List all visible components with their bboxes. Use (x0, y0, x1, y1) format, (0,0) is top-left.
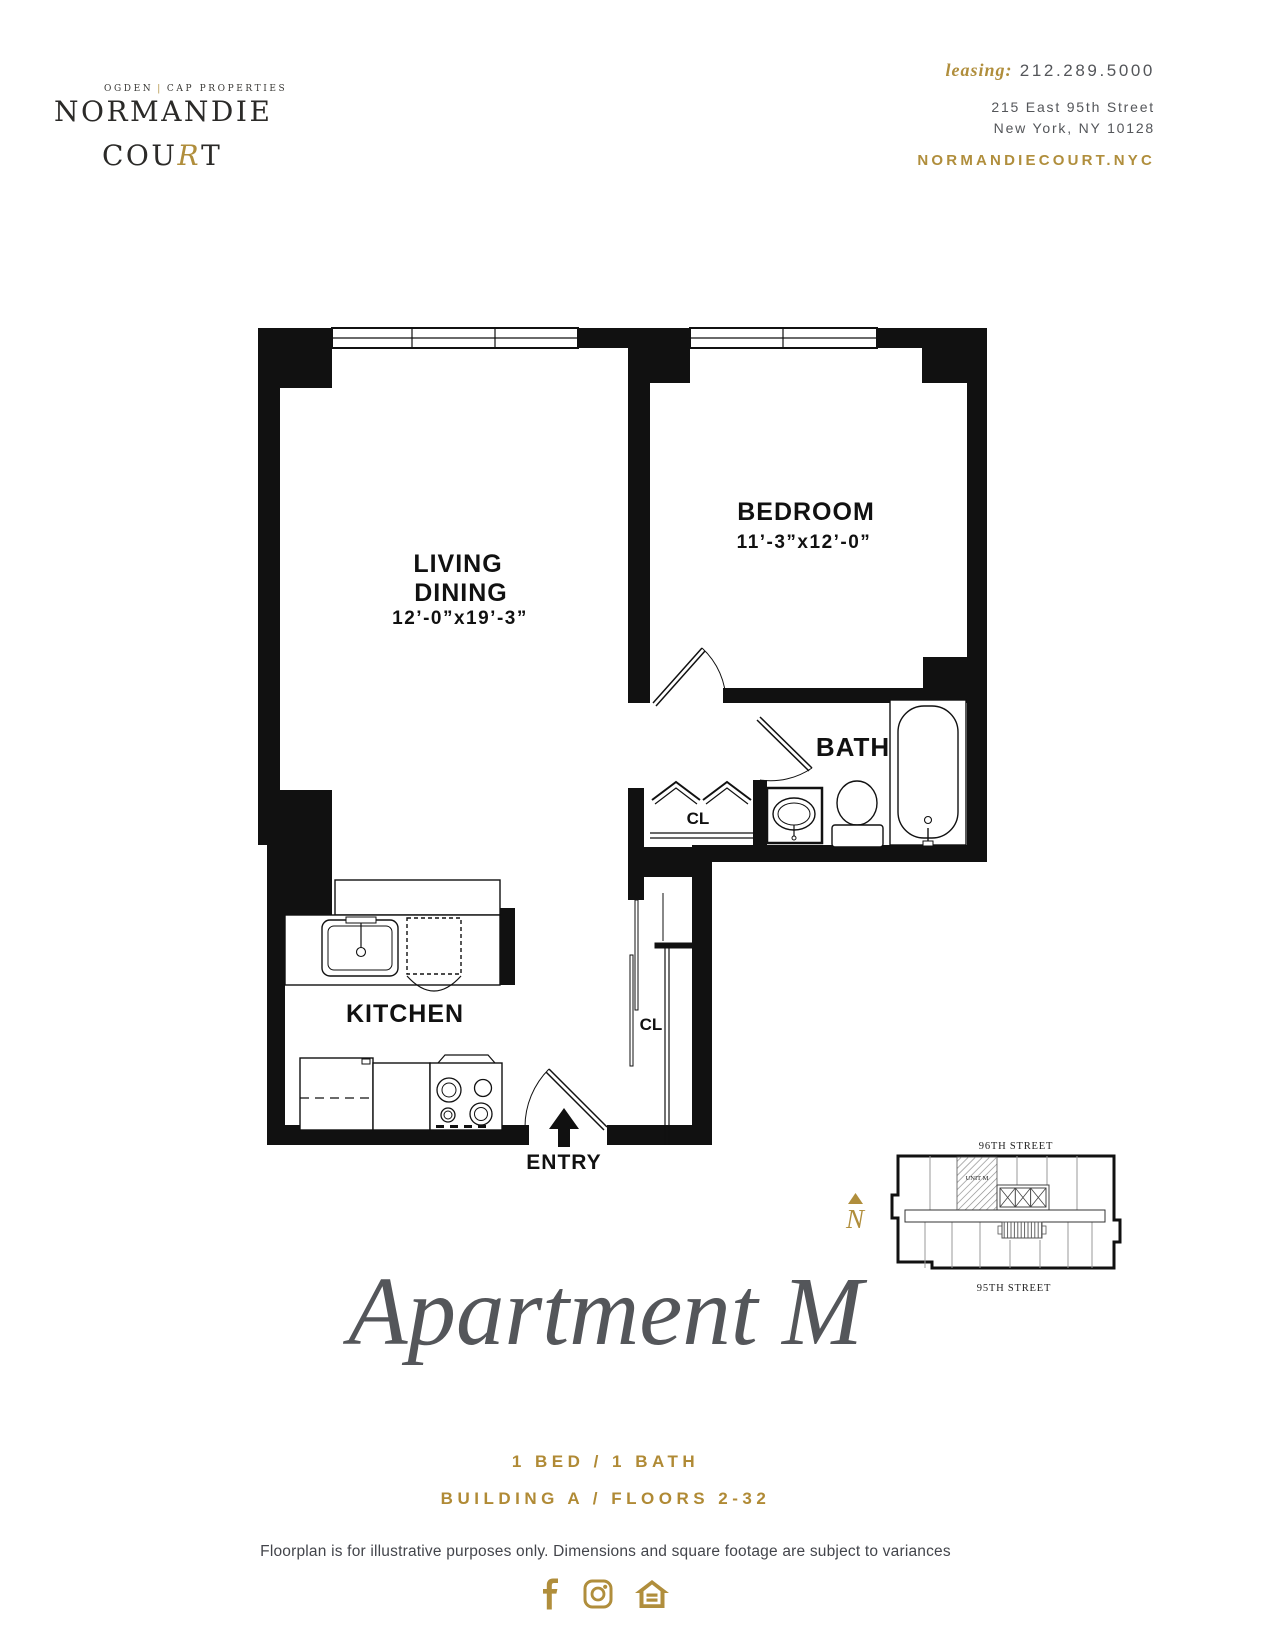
spec-bed-bath: 1 BED / 1 BATH (0, 1452, 1243, 1472)
bath-door (757, 717, 812, 781)
kitchen-sink (322, 917, 398, 976)
hall-closet-label: CL (687, 809, 710, 828)
bedroom-label: BEDROOM (737, 498, 875, 526)
bath-label: BATH (816, 732, 890, 762)
brand-name-line2: COURT (102, 139, 222, 172)
bath-sink (767, 788, 822, 843)
north-arrow-icon: N (845, 1193, 866, 1234)
window-band-living (332, 328, 578, 348)
flyer-page: OGDEN|CAP PROPERTIES NORMANDIE COURT lea… (0, 0, 1275, 1650)
entry-arrow-icon (549, 1108, 579, 1147)
living-room-label: LIVING (413, 550, 502, 578)
brand-eyebrow-left: OGDEN (104, 84, 153, 94)
kitchen-label: KITCHEN (346, 1000, 464, 1028)
disclaimer-text: Floorplan is for illustrative purposes o… (0, 1543, 1243, 1561)
living-dimensions: 12’-0”x19’-3” (392, 608, 528, 629)
leasing-line: leasing: 212.289.5000 (917, 60, 1155, 81)
address-block: 215 East 95th Street New York, NY 10128 (917, 97, 1155, 139)
bedroom-door (653, 648, 726, 706)
instagram-icon[interactable] (582, 1578, 614, 1615)
entry-closet-label: CL (640, 1015, 663, 1034)
dining-room-label: DINING (414, 579, 508, 607)
brand-name: NORMANDIE (54, 95, 272, 128)
contact-block: leasing: 212.289.5000 215 East 95th Stre… (917, 60, 1155, 169)
address-line1: 215 East 95th Street (917, 97, 1155, 118)
social-icons-row (0, 1578, 1243, 1615)
north-label: N (845, 1204, 866, 1234)
elevator-core (997, 1185, 1049, 1210)
address-line2: New York, NY 10128 (917, 118, 1155, 139)
brand-eyebrow: OGDEN|CAP PROPERTIES (104, 84, 287, 94)
window-band-bedroom (690, 328, 877, 348)
toilet (832, 781, 883, 847)
entry-label: ENTRY (526, 1151, 601, 1174)
facebook-icon[interactable] (541, 1578, 561, 1615)
brand-eyebrow-right: CAP PROPERTIES (167, 84, 287, 94)
stair-core (998, 1222, 1046, 1238)
corridor-band (905, 1210, 1105, 1222)
stove (430, 1055, 502, 1130)
spec-building-floors: BUILDING A / FLOORS 2-32 (0, 1489, 1243, 1509)
unit-m-label: UNIT M (966, 1175, 989, 1182)
equal-housing-home-icon[interactable] (634, 1578, 670, 1615)
floorplan-drawing: LIVING DINING 12’-0”x19’-3” BEDROOM 11’-… (252, 300, 992, 1180)
brand-court-post: T (201, 139, 222, 172)
brand-monogram-r: R (177, 139, 201, 172)
bathtub (890, 700, 966, 846)
kitchen-counter-lower (373, 1063, 430, 1130)
leasing-label: leasing: (945, 60, 1012, 80)
leasing-phone[interactable]: 212.289.5000 (1020, 61, 1155, 80)
bedroom-dimensions: 11’-3”x12’-0” (737, 532, 872, 553)
street-label-top: 96TH STREET (979, 1141, 1053, 1152)
brand-eyebrow-separator: | (153, 84, 167, 94)
brand-court-pre: COU (102, 139, 177, 172)
apartment-title: Apartment M (0, 1256, 1243, 1367)
unit-m-highlight (957, 1157, 997, 1210)
website-link[interactable]: NORMANDIECOURT.NYC (917, 152, 1155, 169)
